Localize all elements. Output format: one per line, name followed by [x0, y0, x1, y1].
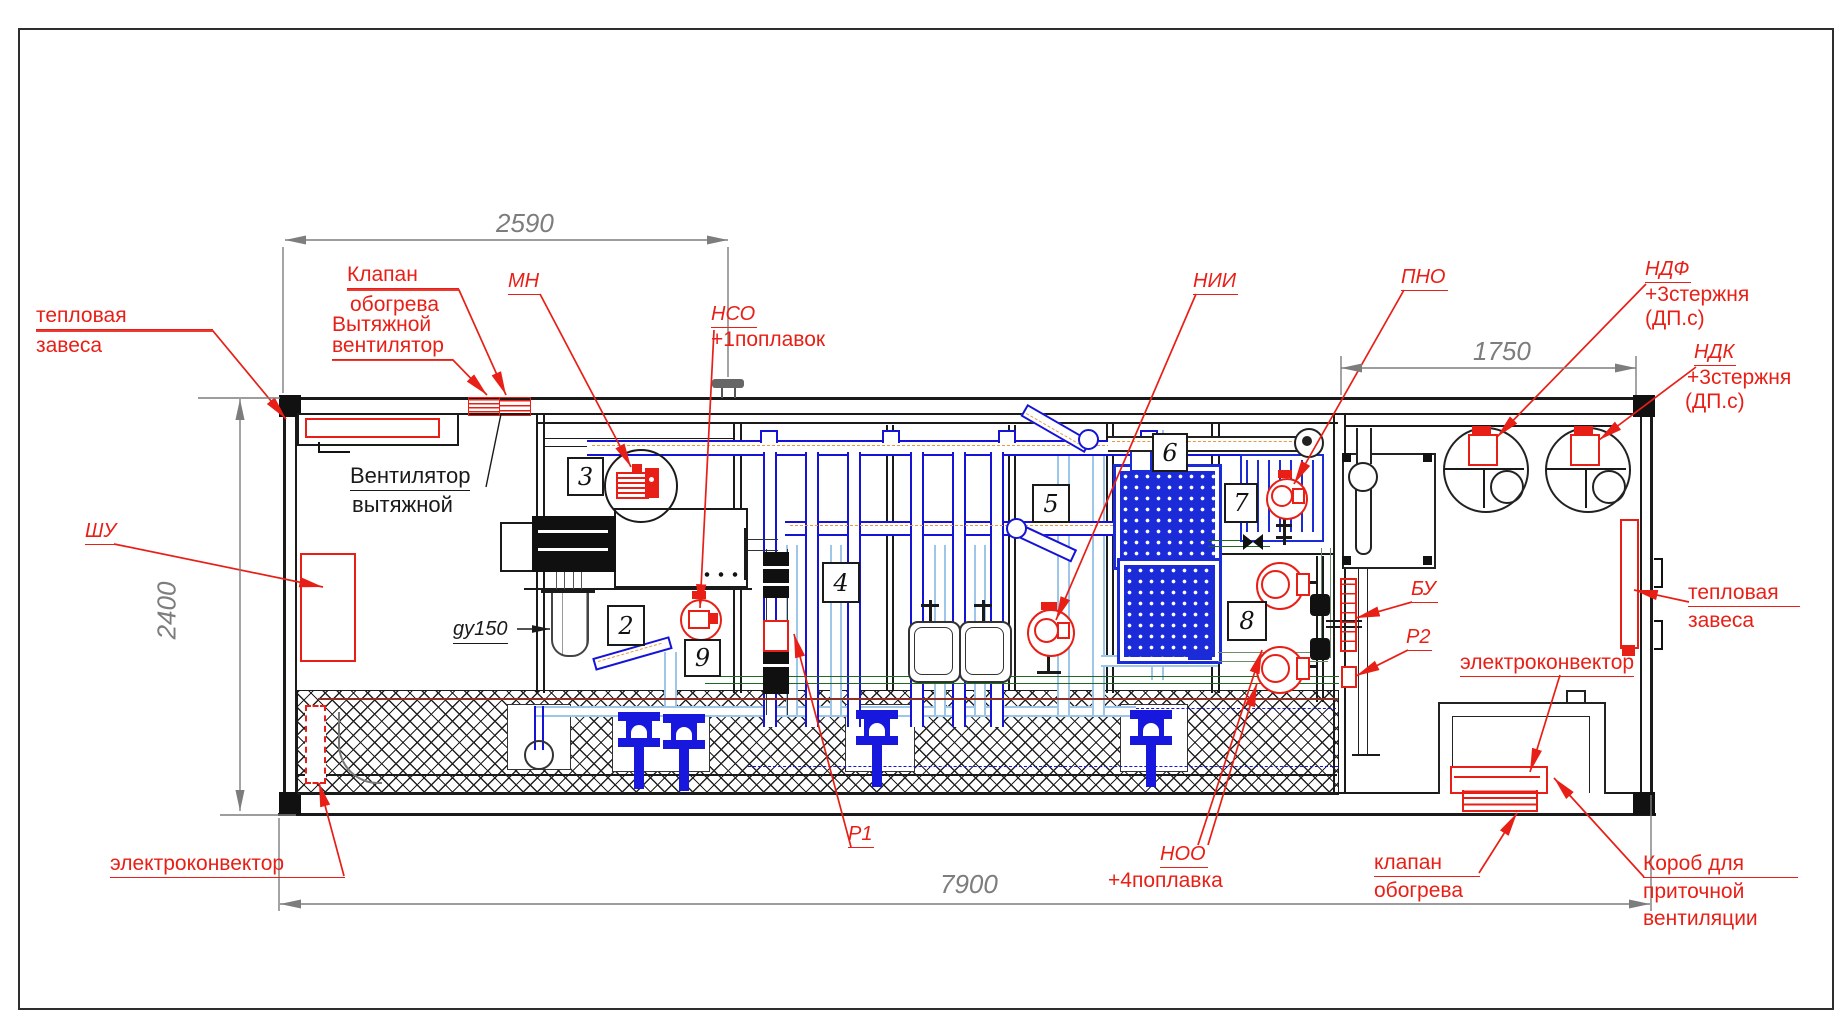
- aeration-downpipe: [910, 452, 924, 727]
- reservoir-corner: [1423, 453, 1432, 462]
- well-inner-circle: [1490, 470, 1524, 504]
- label-ndf-note1: +3стержня: [1645, 282, 1749, 308]
- drainage-pump-icon: [663, 714, 705, 792]
- pno-valve-tick: [1276, 524, 1292, 527]
- air-main-hook: [760, 430, 778, 443]
- supply-duct-stub: [1566, 690, 1586, 704]
- tag-mn: МН: [508, 270, 541, 295]
- tag-p1: Р1: [848, 823, 874, 848]
- noo-pump-nozzle: [1296, 657, 1310, 680]
- tag-shu: ШУ: [85, 520, 118, 545]
- position-box-9: 9: [684, 639, 721, 677]
- pipe-ring-dot: [1302, 436, 1312, 446]
- label-thermal-curtain-right-l1: тепловая: [1688, 580, 1800, 607]
- collector-dashed-cont: [1136, 708, 1336, 709]
- gy150-pipe: [556, 570, 565, 590]
- position-box-4: 4: [822, 562, 860, 603]
- membrane-cassette-icon: [1113, 464, 1222, 570]
- gy150-pipe: [573, 570, 582, 590]
- tag-bu: БУ: [1411, 578, 1438, 603]
- bottom-outer-line: [278, 813, 1656, 816]
- ndf-pump-icon: [1468, 434, 1498, 466]
- corner-casting-icon: [279, 792, 301, 815]
- electroconvector-inner-line: [1454, 776, 1540, 778]
- label-ndk-note2: (ДП.с): [1685, 389, 1745, 415]
- position-number: 7: [1233, 489, 1248, 517]
- tag-ndf: НДФ: [1645, 258, 1691, 283]
- elbow-down-pipe: [664, 652, 677, 708]
- nii-pump-cap: [1041, 602, 1057, 610]
- tank-valve-icon: [974, 604, 992, 607]
- position-number: 5: [1043, 490, 1058, 518]
- blower-unit-black: [532, 516, 616, 572]
- reservoir-corner: [1342, 556, 1351, 565]
- label-thermal-curtain-left-l2: завеса: [36, 333, 102, 359]
- position-box-7: 7: [1224, 483, 1258, 523]
- u-drain-circle: [524, 740, 554, 770]
- nso-pump-cap: [692, 591, 706, 599]
- label-heating-valve-roof-l1: Клапан: [347, 262, 459, 289]
- partition-7-8-horizontal: [1213, 553, 1335, 555]
- drainage-pump-icon: [856, 710, 898, 788]
- aeration-downpipe: [805, 452, 819, 727]
- manifold-valve: [1310, 594, 1330, 616]
- noo-pump-volute: [1261, 570, 1290, 599]
- control-cabinet-shu: [300, 553, 356, 662]
- reservoir-ring: [1348, 462, 1378, 492]
- p1-flange: [744, 528, 748, 580]
- manifold-valve: [1310, 638, 1330, 660]
- noo-pump-nozzle: [1296, 573, 1310, 596]
- nii-pump-base: [1037, 671, 1061, 674]
- p1-check-valve: [763, 552, 789, 598]
- right-wall-inner: [1640, 413, 1642, 793]
- gy150-flange: [541, 589, 595, 593]
- tag-p2: Р2: [1406, 626, 1432, 651]
- door-hinge-icon: [1654, 620, 1663, 650]
- valve-bowtie-icon: [1253, 534, 1263, 550]
- blower-slit: [538, 548, 608, 551]
- nso-pump-nozzle: [709, 613, 718, 624]
- tag-ndk: НДК: [1694, 341, 1736, 366]
- sampling-tank-inner: [965, 627, 1004, 675]
- tank-wall: [886, 425, 888, 690]
- label-supply-duct-l1: Короб для: [1643, 851, 1798, 878]
- aeration-downpipe: [990, 452, 1004, 727]
- roof-chimney-stem: [721, 388, 736, 398]
- position-box-5: 5: [1032, 484, 1070, 523]
- label-supply-duct-l2: приточной: [1643, 879, 1744, 905]
- corner-casting-icon: [1633, 395, 1655, 417]
- gy150-tank-icon: [551, 593, 589, 657]
- machine-dots: [698, 568, 740, 577]
- label-ndk-note1: +3стержня: [1687, 365, 1791, 391]
- tag-noo: НОО: [1160, 843, 1208, 868]
- corner-casting-icon: [1633, 792, 1655, 815]
- nii-pump-volute: [1034, 618, 1059, 643]
- well-divider: [1483, 469, 1485, 508]
- pno-pump-volute: [1271, 485, 1293, 507]
- drainage-pump-icon: [618, 712, 660, 790]
- heating-valve-grille-icon: [1462, 790, 1538, 812]
- right-wall-outer: [1650, 397, 1653, 815]
- reservoir-corner: [1423, 556, 1432, 565]
- tank-valve-icon: [921, 604, 939, 607]
- pno-pump-nozzle: [1292, 488, 1305, 504]
- label-exhaust-fan-black-l2: вытяжной: [352, 491, 453, 518]
- electroconvector-left-unit: [305, 705, 326, 784]
- label-electroconvector-right: электроконвектор: [1460, 650, 1634, 677]
- roof-vent-grille-icon: [499, 397, 531, 416]
- roof-chimney-cap-icon: [712, 379, 744, 388]
- label-heating-valve-bottom-l2: обогрева: [1374, 878, 1463, 904]
- reservoir-dip-pipe: [1355, 487, 1372, 555]
- position-box-2: 2: [607, 605, 645, 646]
- position-box-8: 8: [1227, 601, 1267, 641]
- mn-pump-dot: [649, 477, 654, 482]
- label-noo-note: +4поплавка: [1108, 868, 1223, 894]
- ndk-pump-cap: [1574, 426, 1593, 434]
- label-supply-duct-l3: вентиляции: [1643, 906, 1758, 932]
- p1-elbow: [748, 539, 778, 551]
- dim-1750-text: 1750: [1473, 336, 1531, 367]
- reservoir-corner: [1342, 453, 1351, 462]
- floor-band-line: [297, 774, 1337, 776]
- decanter-pivot-icon: [1006, 518, 1027, 539]
- position-box-6: 6: [1152, 433, 1188, 472]
- curtain-bracket: [318, 442, 350, 453]
- valve-bowtie-icon: [1243, 534, 1253, 550]
- label-gy150: gy150: [453, 616, 508, 644]
- position-box-3: 3: [567, 457, 604, 496]
- aeration-downpipe: [952, 452, 966, 727]
- air-main-hook: [882, 430, 900, 443]
- dim-2590-text: 2590: [496, 208, 554, 239]
- mn-pump-motor: [645, 468, 659, 498]
- reservoir-top-pipe: [1356, 428, 1372, 464]
- p2-device: [1341, 666, 1357, 688]
- p1-lower-valve: [763, 652, 789, 694]
- tank-wall: [1106, 422, 1108, 693]
- dim-7900-text: 7900: [940, 869, 998, 900]
- mn-pump-cap: [632, 464, 642, 472]
- drainage-pump-icon: [1130, 710, 1172, 788]
- ndf-pump-cap: [1472, 426, 1491, 434]
- air-main-hook: [998, 430, 1016, 443]
- pno-valve-tick: [1276, 536, 1292, 539]
- air-branch-dashline: [790, 525, 1128, 526]
- ndk-pump-icon: [1570, 434, 1600, 466]
- position-number: 8: [1239, 607, 1254, 635]
- position-number: 4: [833, 569, 848, 597]
- dim-2400-text: 2400: [152, 566, 183, 656]
- label-exhaust-fan-black-l1: Вентилятор: [350, 462, 470, 491]
- pno-pump-cap: [1278, 470, 1292, 478]
- permeate-pipe: [1108, 436, 1308, 452]
- well-inner-circle: [1592, 470, 1626, 504]
- partition-techroom: [1333, 413, 1335, 793]
- nso-pump-body: [688, 610, 710, 629]
- blower-slit: [538, 530, 608, 533]
- tank-wall: [1014, 425, 1016, 690]
- nii-pump-nozzle: [1057, 622, 1070, 639]
- sampling-tank-inner: [914, 627, 953, 675]
- membrane-cassette-icon: [1117, 558, 1222, 664]
- bu-control-device: [1340, 578, 1357, 652]
- noo-pump-volute: [1261, 654, 1290, 683]
- label-ndf-note2: (ДП.с): [1645, 306, 1705, 332]
- label-thermal-curtain-left-l1: тепловая: [36, 303, 213, 330]
- tag-pno: ПНО: [1401, 266, 1448, 291]
- tank-wall: [892, 425, 894, 690]
- permeate-dashline: [1112, 441, 1302, 442]
- door-hinge-icon: [1654, 558, 1663, 588]
- technical-drawing-canvas: 3 2 9: [0, 0, 1847, 1035]
- drain-green-pipe: [705, 676, 1339, 684]
- label-exhaust-fan-red-l2: вентилятор: [332, 333, 453, 360]
- well-divider: [1585, 469, 1587, 508]
- label-thermal-curtain-right-l2: завеса: [1688, 608, 1754, 634]
- label-nso-note: +1поплавок: [711, 327, 825, 353]
- tag-nso: НСО: [711, 303, 757, 328]
- p1-valve-red: [763, 620, 789, 652]
- position-number: 2: [618, 612, 633, 640]
- dark-red-floor-line: [318, 698, 1337, 700]
- label-electroconvector-left: электроконвектор: [110, 851, 345, 878]
- room-standpipe: [1358, 567, 1368, 755]
- tag-nii: НИИ: [1193, 270, 1238, 295]
- left-wall-outer: [283, 397, 286, 815]
- position-number: 6: [1162, 439, 1177, 467]
- decanter-pivot-icon: [1078, 429, 1099, 450]
- label-heating-valve-bottom-l1: клапан: [1374, 850, 1480, 877]
- membrane-bottom-valve: [1188, 652, 1212, 660]
- position-number: 9: [695, 644, 710, 672]
- thermal-curtain-left-unit: [305, 418, 440, 438]
- position-number: 3: [578, 463, 593, 491]
- pno-valve-stem: [1283, 517, 1286, 545]
- blue-dashed-line: [748, 766, 1338, 767]
- roof-vent-grille-icon: [468, 397, 500, 416]
- thermal-curtain-right-unit: [1620, 519, 1639, 649]
